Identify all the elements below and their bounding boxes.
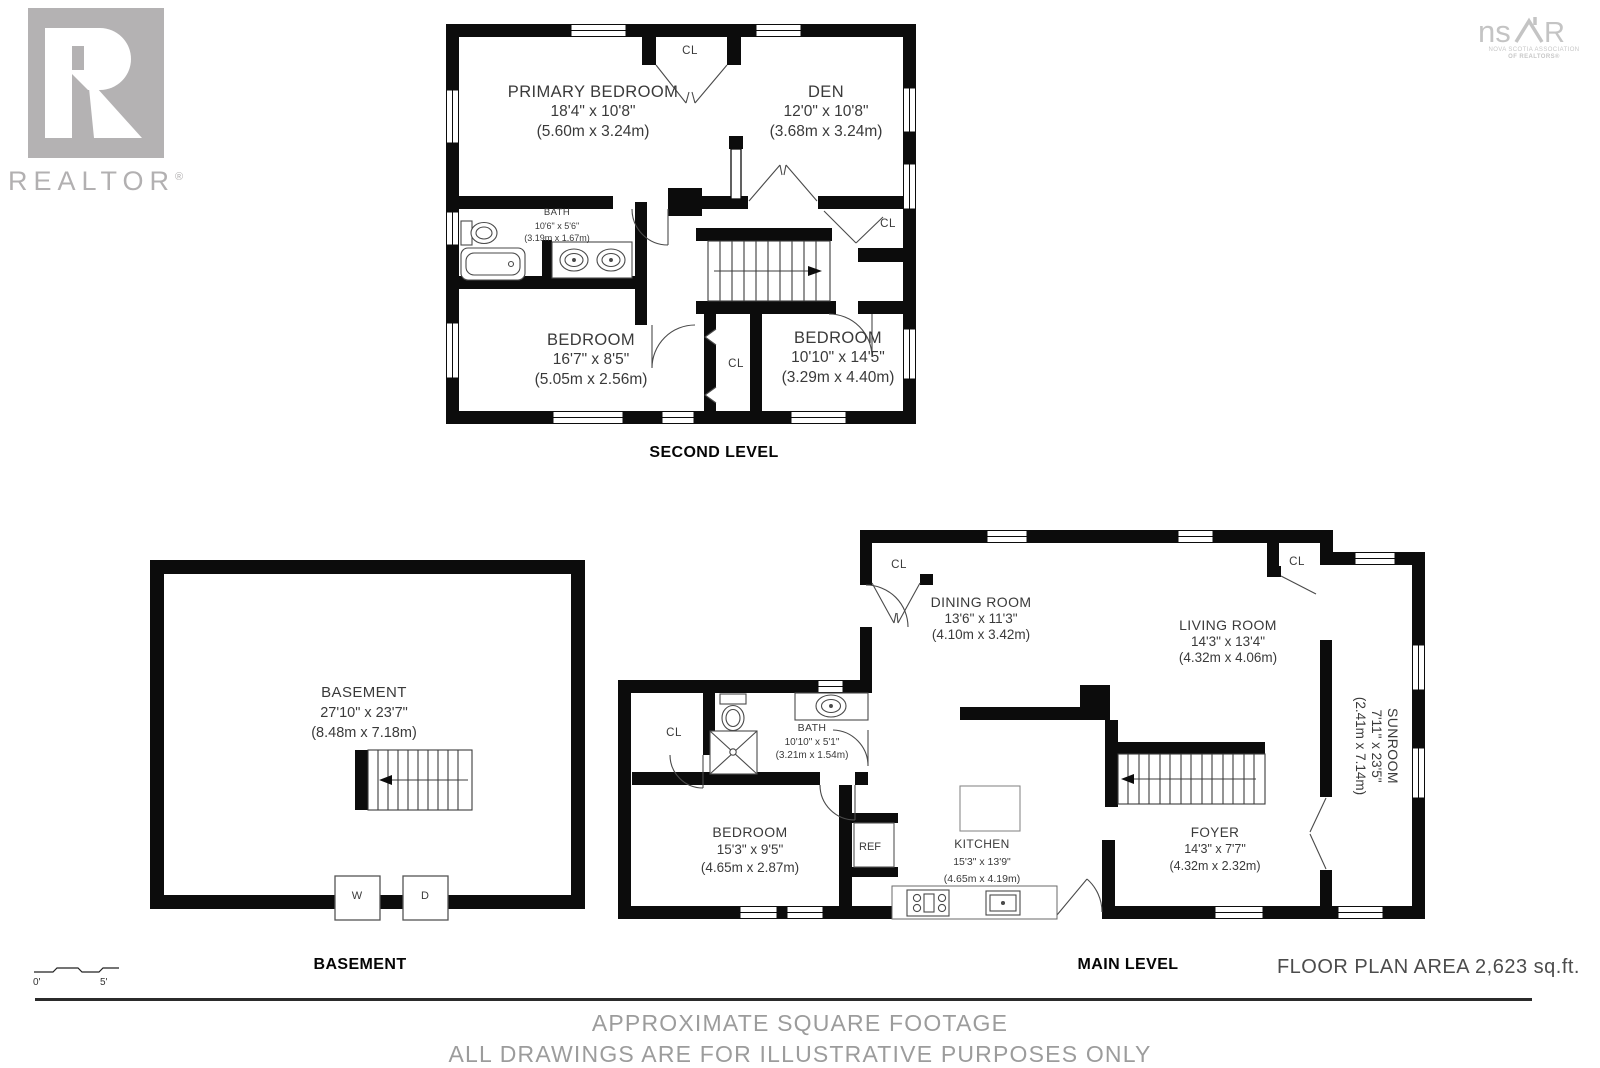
- second-level-stairs: [708, 241, 830, 301]
- second-level-title: SECOND LEVEL: [649, 444, 778, 462]
- main-level-title: MAIN LEVEL: [1078, 956, 1179, 974]
- realtor-logo: [28, 8, 164, 158]
- footer-divider: [35, 998, 1532, 1001]
- room-label-dining-room: DINING ROOM 13'6" x 11'3" (4.10m x 3.42m…: [931, 594, 1032, 644]
- nsar-r-text: R: [1544, 17, 1565, 48]
- floor-plan-area-text: FLOOR PLAN AREA 2,623 sq.ft.: [1277, 956, 1580, 979]
- main-level-stairs: [1118, 754, 1265, 804]
- footer-line-2: ALL DRAWINGS ARE FOR ILLUSTRATIVE PURPOS…: [448, 1041, 1151, 1068]
- nsar-logo: ns R: [1476, 12, 1592, 48]
- room-label-bedroom-left: BEDROOM 16'7" x 8'5" (5.05m x 2.56m): [535, 330, 648, 390]
- registered-mark: ®: [175, 171, 183, 183]
- room-label-bath-main: BATH 10'10" x 5'1" (3.21m x 1.54m): [776, 722, 849, 763]
- room-label-primary-bedroom: PRIMARY BEDROOM 18'4" x 10'8" (5.60m x 3…: [508, 82, 678, 142]
- footer-line-1: APPROXIMATE SQUARE FOOTAGE: [592, 1010, 1008, 1037]
- closet-label-hall: CL: [728, 358, 744, 370]
- closet-label-right: CL: [880, 218, 896, 230]
- room-label-living-room: LIVING ROOM 14'3" x 13'4" (4.32m x 4.06m…: [1179, 617, 1277, 667]
- nsar-subtext: NOVA SCOTIA ASSOCIATION OF REALTORS®: [1476, 47, 1592, 61]
- basement-stairs: [355, 750, 472, 810]
- realtor-r-icon: [28, 8, 164, 158]
- basement-title: BASEMENT: [314, 956, 407, 974]
- room-label-kitchen: KITCHEN 15'3" x 13'9" (4.65m x 4.19m): [944, 836, 1020, 889]
- nsar-house-icon: [1516, 17, 1542, 42]
- room-label-bedroom-right: BEDROOM 10'10" x 14'5" (3.29m x 4.40m): [782, 328, 895, 388]
- room-label-basement: BASEMENT 27'10" x 23'7" (8.48m x 7.18m): [311, 683, 417, 743]
- closet-label-top: CL: [682, 45, 698, 57]
- scale-end-label: 5': [100, 977, 107, 988]
- nsar-ns-text: ns: [1478, 14, 1511, 48]
- dryer-label: D: [421, 890, 429, 902]
- floorplan-page: REALTOR® ns R NOVA SCOTIA ASSOCIATION OF…: [0, 0, 1600, 1068]
- fridge-label: REF: [859, 841, 881, 853]
- realtor-wordmark: REALTOR®: [8, 166, 183, 197]
- scale-bar-line: [34, 968, 119, 972]
- room-label-bath-second: BATH 10'6" x 5'6" (3.19m x 1.67m): [524, 207, 590, 245]
- closet-label-living: CL: [1289, 556, 1305, 568]
- room-label-foyer: FOYER 14'3" x 7'7" (4.32m x 2.32m): [1169, 824, 1260, 875]
- second-level-half-wall: [731, 149, 741, 199]
- room-label-bedroom-main: BEDROOM 15'3" x 9'5" (4.65m x 2.87m): [701, 823, 799, 877]
- washer-label: W: [352, 890, 362, 902]
- closet-label-dining: CL: [891, 559, 907, 571]
- room-label-sunroom: SUNROOM 7'11" x 23'5" (2.41m x 7.14m): [1351, 697, 1401, 795]
- room-label-den: DEN 12'0" x 10'8" (3.68m x 3.24m): [770, 82, 883, 142]
- scale-start-label: 0': [33, 977, 40, 988]
- closet-label-bedroom: CL: [666, 727, 682, 739]
- scale-bar: [33, 964, 121, 976]
